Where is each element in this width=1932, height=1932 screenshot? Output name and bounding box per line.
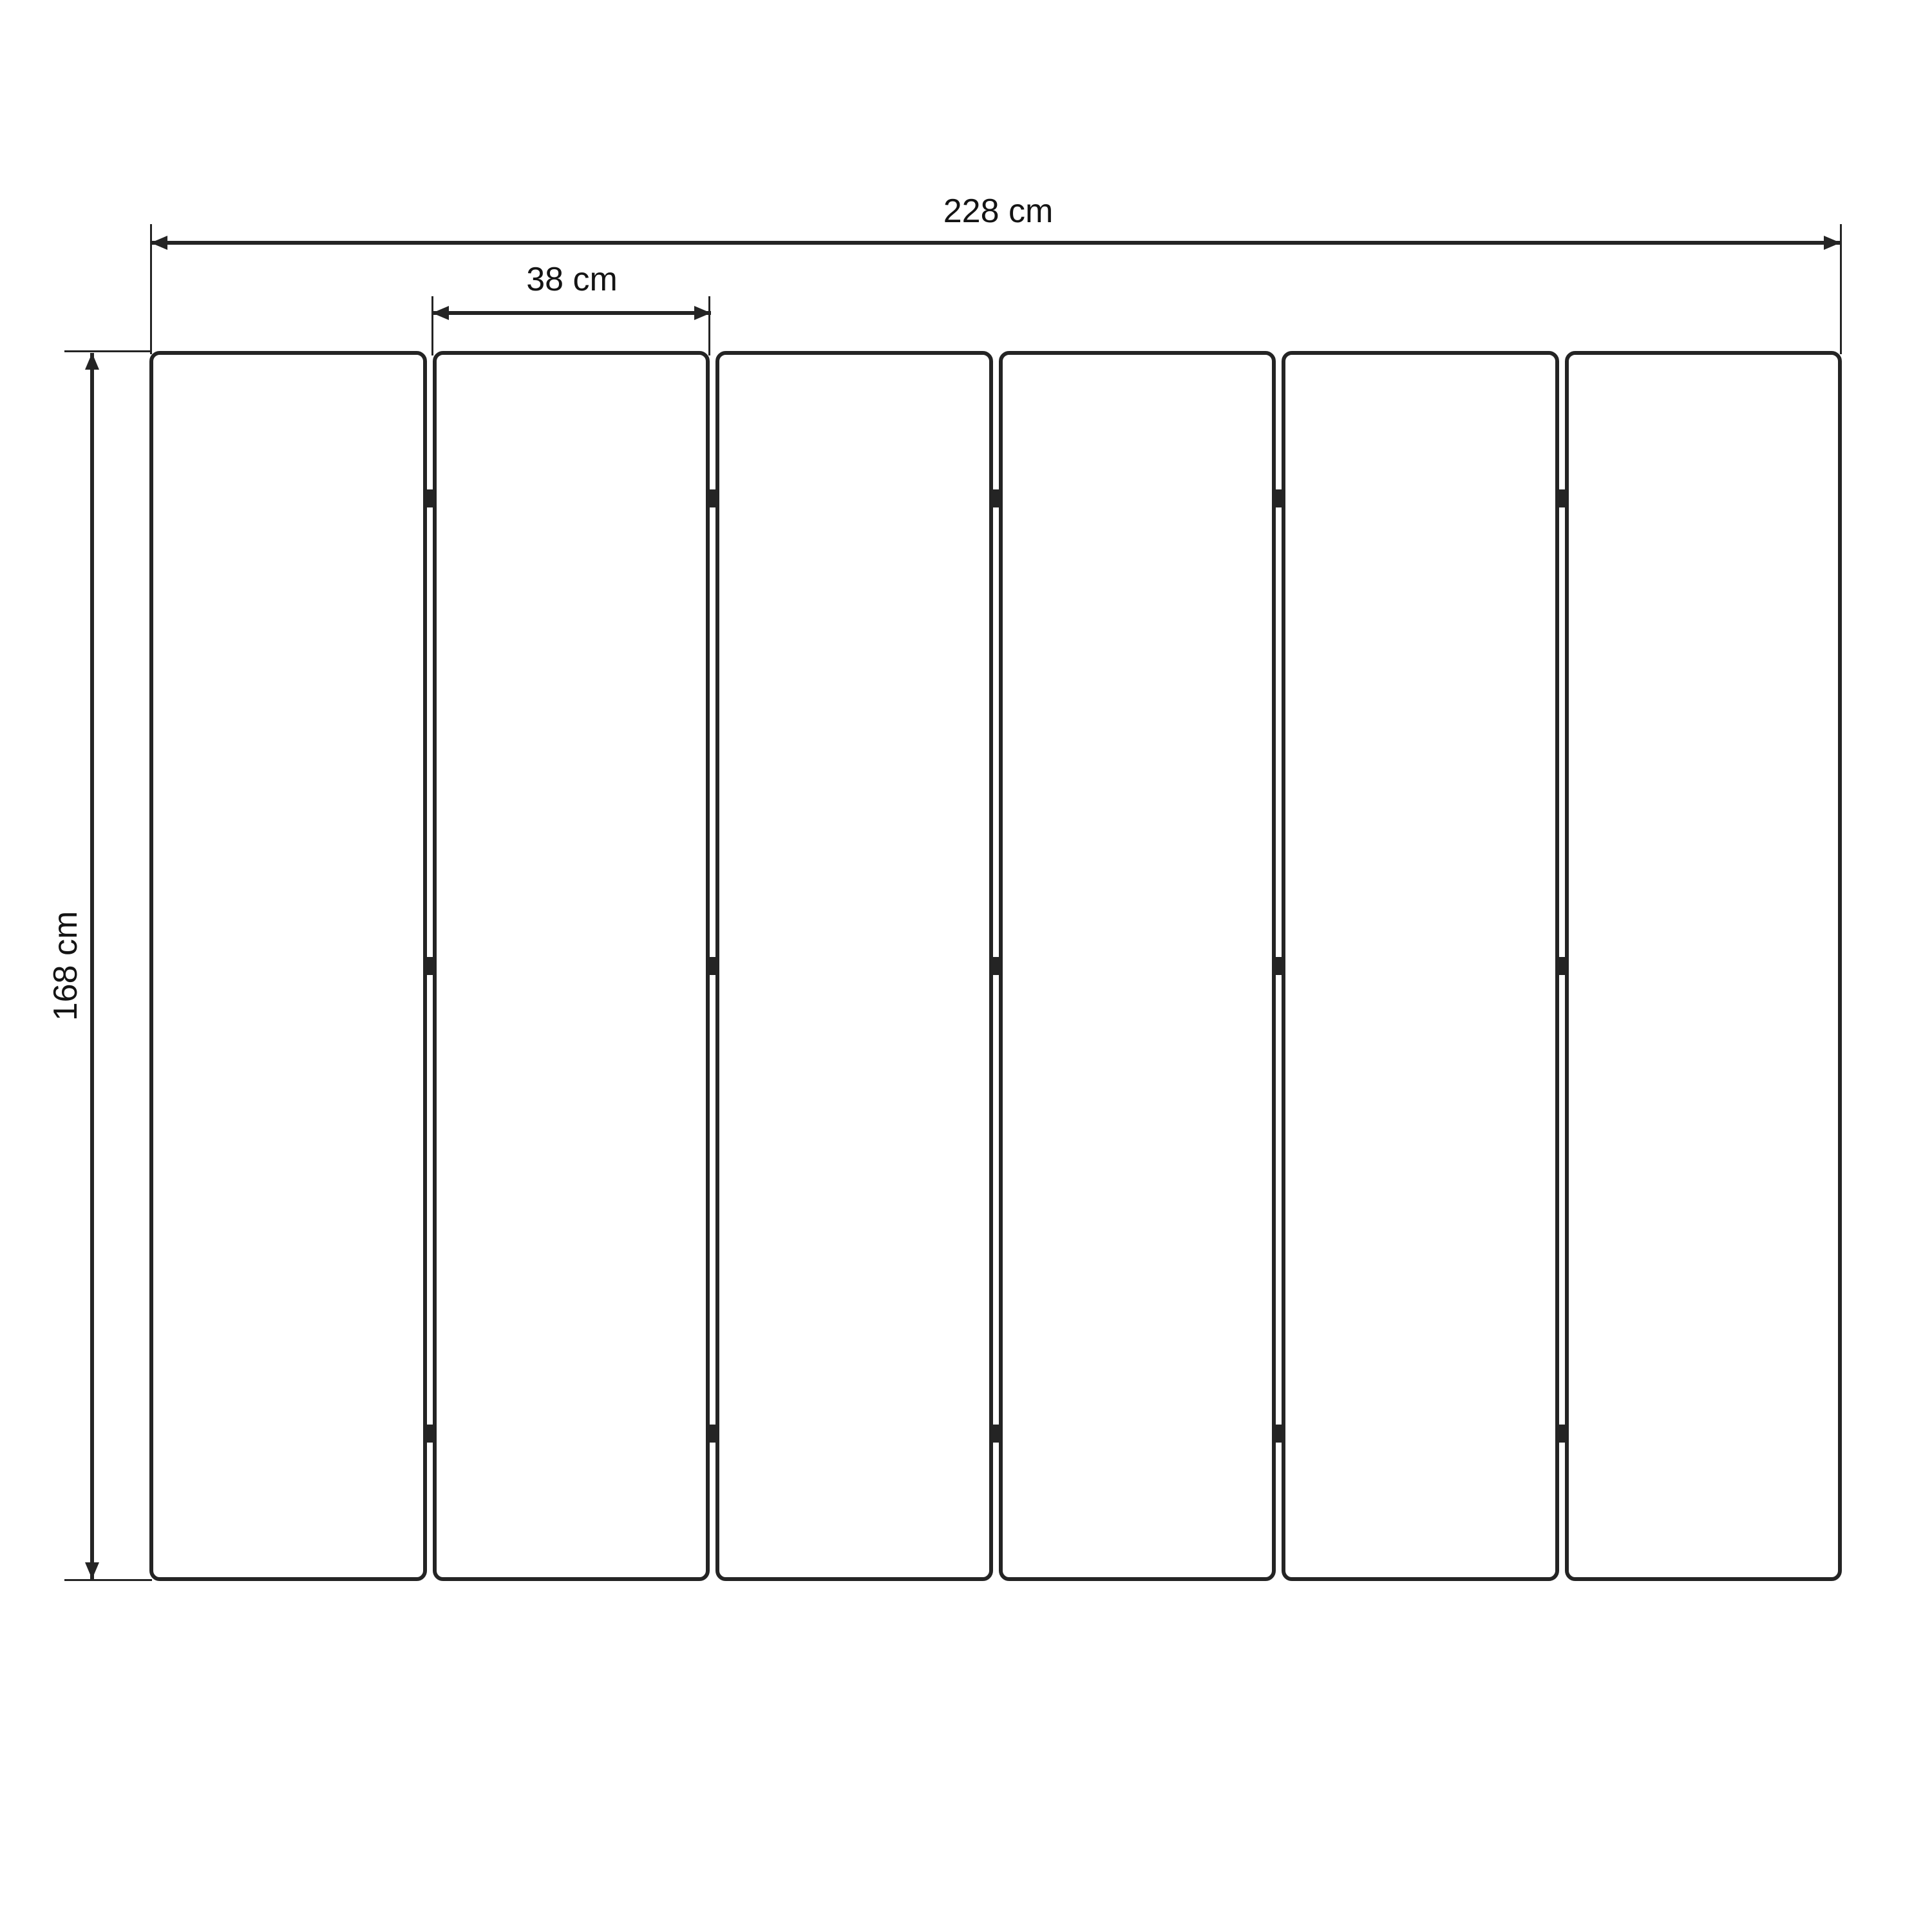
hinge-connector <box>1558 489 1567 507</box>
drawing-canvas: 228 cm 38 cm 168 cm <box>0 0 1932 1932</box>
hinge-connector <box>708 1425 717 1443</box>
panel-width-dimension-line <box>432 311 711 315</box>
total-width-label: 228 cm <box>943 194 1054 228</box>
height-dimension-line <box>90 353 94 1579</box>
hinge-connector <box>1558 957 1567 975</box>
dimension-arrow-down-icon <box>85 1562 99 1579</box>
panel <box>149 351 427 1581</box>
panel-width-label: 38 cm <box>526 263 618 296</box>
panel <box>999 351 1276 1581</box>
extension-line-panel-left <box>431 296 433 355</box>
extension-line-panel-right <box>708 296 710 355</box>
dimension-arrow-left-icon <box>151 236 167 250</box>
extension-line-height-bottom <box>64 1579 152 1581</box>
dimension-arrow-left-icon <box>432 306 449 320</box>
hinge-connector <box>992 957 1001 975</box>
hinge-connector <box>1274 957 1283 975</box>
panel-row <box>149 351 1842 1581</box>
panel <box>1565 351 1842 1581</box>
hinge-connector <box>708 489 717 507</box>
extension-line-total-right <box>1840 224 1842 354</box>
hinge-connector <box>426 489 435 507</box>
hinge-connector <box>708 957 717 975</box>
hinge-connector <box>1558 1425 1567 1443</box>
height-label: 168 cm <box>49 911 82 1021</box>
panel <box>433 351 710 1581</box>
hinge-connector <box>426 957 435 975</box>
hinge-connector <box>1274 489 1283 507</box>
hinge-connector <box>992 1425 1001 1443</box>
hinge-connector <box>992 489 1001 507</box>
hinge-connector <box>426 1425 435 1443</box>
dimension-arrow-right-icon <box>1824 236 1841 250</box>
hinge-connector <box>1274 1425 1283 1443</box>
dimension-arrow-up-icon <box>85 353 99 370</box>
panel <box>1282 351 1559 1581</box>
total-width-dimension-line <box>151 241 1841 245</box>
panel <box>715 351 993 1581</box>
extension-line-total-left <box>150 224 152 354</box>
extension-line-height-top <box>64 350 152 352</box>
